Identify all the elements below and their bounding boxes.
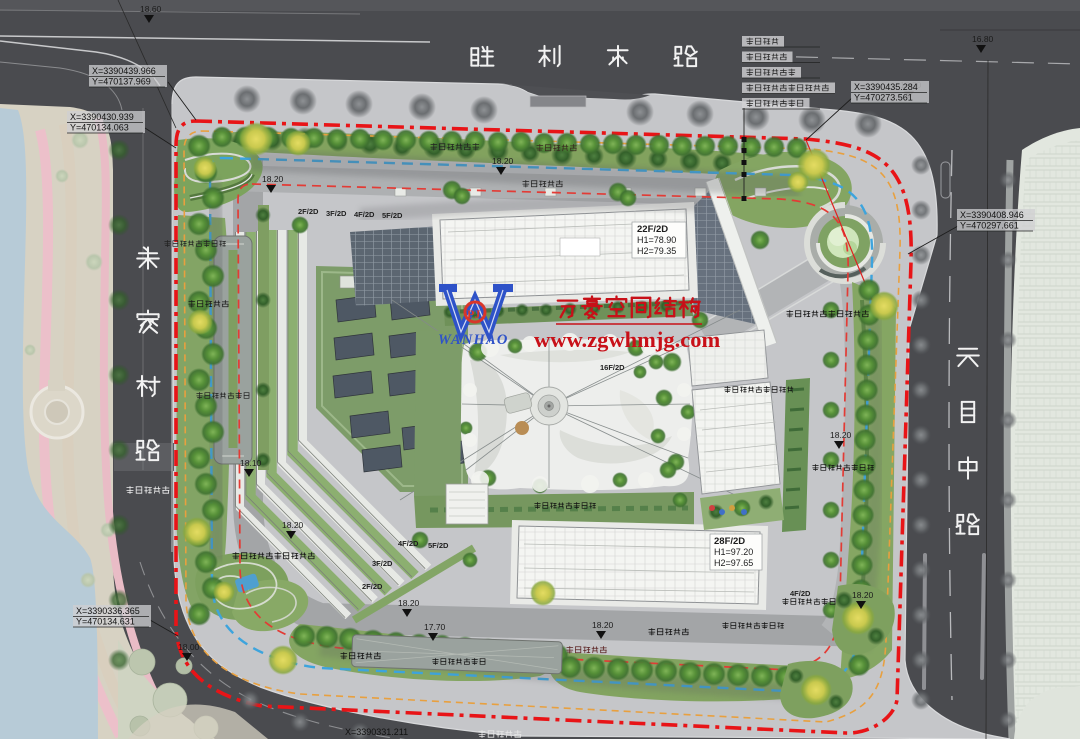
svg-text:X=3390439.966: X=3390439.966: [92, 66, 156, 76]
svg-text:H1=97.20: H1=97.20: [714, 547, 753, 557]
svg-text:17.70: 17.70: [424, 622, 446, 632]
svg-text:16F/2D: 16F/2D: [600, 363, 625, 372]
svg-text:4F/2D: 4F/2D: [354, 210, 375, 219]
svg-text:X=3390336.365: X=3390336.365: [76, 606, 140, 616]
svg-text:18.60: 18.60: [140, 4, 162, 14]
svg-text:5F/2D: 5F/2D: [382, 211, 403, 220]
svg-text:18.20: 18.20: [492, 156, 514, 166]
svg-text:H2=97.65: H2=97.65: [714, 558, 753, 568]
svg-text:18.00: 18.00: [178, 642, 200, 652]
svg-text:Y=470297.661: Y=470297.661: [960, 221, 1019, 231]
svg-text:28F/2D: 28F/2D: [714, 536, 745, 547]
svg-text:18.20: 18.20: [398, 598, 420, 608]
svg-text:www.zgwhmjg.com: www.zgwhmjg.com: [534, 327, 720, 352]
svg-text:X=3390435.284: X=3390435.284: [854, 82, 918, 92]
svg-text:22F/2D: 22F/2D: [637, 224, 668, 235]
svg-text:4F/2D: 4F/2D: [398, 539, 419, 548]
svg-text:Y=470273.561: Y=470273.561: [854, 93, 913, 103]
svg-text:Y=470137.969: Y=470137.969: [92, 77, 151, 87]
svg-text:18.20: 18.20: [852, 590, 874, 600]
svg-text:Y=470134.631: Y=470134.631: [76, 617, 135, 627]
svg-text:X=3390408.946: X=3390408.946: [960, 210, 1024, 220]
svg-text:4F/2D: 4F/2D: [790, 589, 811, 598]
svg-text:WANHAO: WANHAO: [438, 332, 509, 348]
svg-text:18.20: 18.20: [592, 620, 614, 630]
svg-text:18.20: 18.20: [282, 520, 304, 530]
svg-text:X=3390430.939: X=3390430.939: [70, 112, 134, 122]
svg-text:H1=78.90: H1=78.90: [637, 235, 676, 245]
svg-text:5F/2D: 5F/2D: [428, 541, 449, 550]
svg-text:2F/2D: 2F/2D: [362, 582, 383, 591]
svg-text:18.20: 18.20: [262, 174, 284, 184]
svg-text:16.80: 16.80: [972, 34, 994, 44]
svg-text:3F/2D: 3F/2D: [372, 559, 393, 568]
svg-text:X=3390331.211: X=3390331.211: [345, 727, 408, 737]
svg-text:3F/2D: 3F/2D: [326, 209, 347, 218]
svg-text:PJ: PJ: [467, 307, 480, 321]
svg-text:2F/2D: 2F/2D: [298, 207, 319, 216]
svg-text:18.20: 18.20: [830, 430, 852, 440]
svg-text:H2=79.35: H2=79.35: [637, 246, 676, 256]
svg-text:18.10: 18.10: [240, 458, 262, 468]
svg-text:Y=470134.063: Y=470134.063: [70, 123, 129, 133]
